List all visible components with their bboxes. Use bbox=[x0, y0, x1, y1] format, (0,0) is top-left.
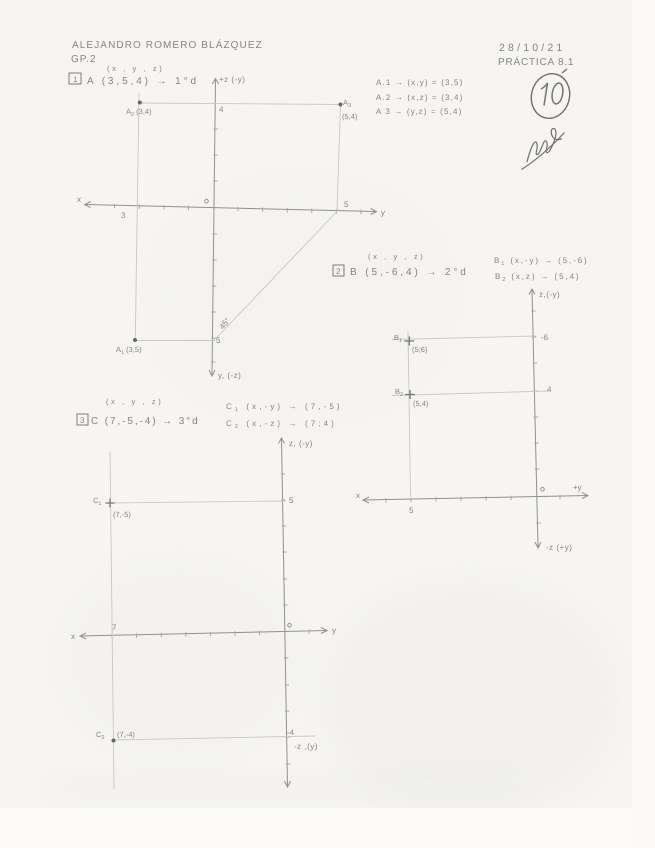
svg-text:5: 5 bbox=[409, 506, 414, 515]
svg-text:(x , y , z): (x , y , z) bbox=[107, 64, 164, 73]
svg-text:(7,-5): (7,-5) bbox=[113, 510, 131, 519]
svg-text:PRÁCTICA 8.1: PRÁCTICA 8.1 bbox=[498, 56, 574, 68]
svg-text:x: x bbox=[356, 491, 360, 500]
svg-text:7: 7 bbox=[112, 623, 117, 632]
svg-text:B (5,-6,4) → 2°d: B (5,-6,4) → 2°d bbox=[350, 267, 469, 278]
svg-text:28/10/21: 28/10/21 bbox=[499, 42, 565, 54]
svg-text:z, (-y): z, (-y) bbox=[289, 439, 313, 448]
svg-text:(5;6): (5;6) bbox=[412, 345, 428, 354]
svg-text:(7,-4): (7,-4) bbox=[117, 730, 135, 739]
svg-text:A 3 → (y,z) = (5,4): A 3 → (y,z) = (5,4) bbox=[376, 107, 462, 116]
svg-text:(x , y , z): (x , y , z) bbox=[106, 397, 163, 406]
svg-text:C (7,-5,-4) → 3°d: C (7,-5,-4) → 3°d bbox=[91, 416, 200, 427]
svg-text:y, (-z): y, (-z) bbox=[218, 371, 241, 380]
svg-text:+z (-y): +z (-y) bbox=[219, 75, 245, 84]
svg-text:4: 4 bbox=[547, 385, 552, 394]
svg-text:-z ,(y): -z ,(y) bbox=[294, 742, 318, 751]
svg-text:4: 4 bbox=[219, 105, 224, 114]
svg-text:+y: +y bbox=[573, 483, 582, 492]
svg-text:y: y bbox=[332, 626, 336, 635]
svg-text:ALEJANDRO ROMERO BLÁZQUEZ: ALEJANDRO ROMERO BLÁZQUEZ bbox=[72, 39, 263, 51]
svg-text:1: 1 bbox=[73, 75, 78, 84]
svg-text:x: x bbox=[77, 195, 81, 204]
svg-text:y: y bbox=[381, 208, 385, 217]
svg-text:(x , y , z): (x , y , z) bbox=[368, 252, 425, 261]
svg-text:(5,4): (5,4) bbox=[342, 112, 358, 121]
svg-text:3: 3 bbox=[80, 416, 85, 425]
svg-text:A.1 → (x,y) = (3,5): A.1 → (x,y) = (3,5) bbox=[376, 78, 463, 87]
svg-text:-4: -4 bbox=[287, 728, 295, 737]
svg-text:2: 2 bbox=[336, 267, 341, 276]
svg-text:5: 5 bbox=[216, 336, 221, 345]
svg-text:3: 3 bbox=[121, 211, 126, 220]
svg-text:-6: -6 bbox=[541, 333, 549, 342]
svg-text:-z (+y): -z (+y) bbox=[546, 543, 572, 552]
svg-text:A (3,5,4) → 1°d: A (3,5,4) → 1°d bbox=[87, 76, 199, 87]
svg-text:x: x bbox=[71, 632, 75, 641]
svg-text:(5,4): (5,4) bbox=[413, 399, 429, 408]
svg-text:A.2 → (x,z) = (3,4): A.2 → (x,z) = (3,4) bbox=[376, 93, 463, 102]
svg-text:z,(-y): z,(-y) bbox=[539, 290, 560, 299]
svg-text:5: 5 bbox=[344, 200, 349, 209]
svg-text:5: 5 bbox=[289, 496, 294, 505]
svg-text:GP.2: GP.2 bbox=[71, 54, 97, 65]
